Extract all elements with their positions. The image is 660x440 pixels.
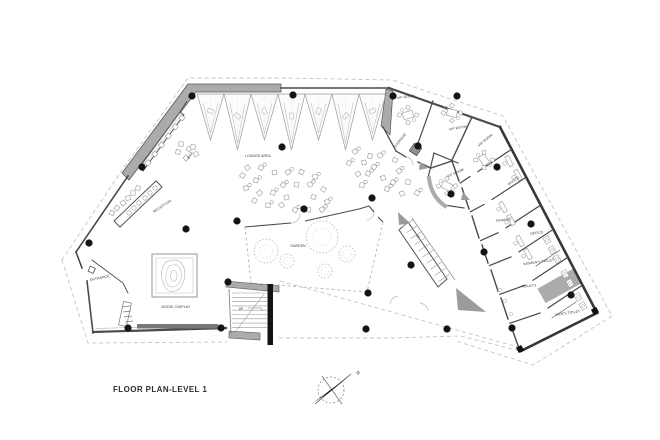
reception-chair-icon xyxy=(132,206,136,210)
tree-icon xyxy=(306,221,338,253)
vip-chair-icon xyxy=(482,166,486,170)
desk-icon xyxy=(505,155,514,167)
vip-side-table-icon xyxy=(476,153,479,156)
tree-inner xyxy=(313,228,331,246)
vip-table-icon xyxy=(446,109,457,118)
table-icon xyxy=(285,180,288,183)
column-dot xyxy=(233,217,240,224)
tree-icon xyxy=(339,246,355,262)
chair-icon xyxy=(266,203,271,208)
compass-north-label: N xyxy=(354,370,361,377)
label-vip-room-3: VIP ROOM xyxy=(477,133,493,148)
reception-chair-icon xyxy=(153,186,157,190)
column-dot xyxy=(389,92,396,99)
wall-wing-inner xyxy=(452,161,520,351)
column-dot xyxy=(278,143,285,150)
column-dot xyxy=(567,291,574,298)
table-icon xyxy=(258,176,261,179)
tree-icon xyxy=(254,239,278,263)
office-desks xyxy=(497,155,533,260)
chair-icon xyxy=(284,195,289,200)
door-wedge-wing xyxy=(461,192,470,200)
column-dot xyxy=(453,92,460,99)
table-icon xyxy=(382,151,385,154)
desk-icon xyxy=(516,235,525,247)
tree-inner xyxy=(283,257,291,265)
stair-side-band xyxy=(399,222,447,287)
column-dot xyxy=(300,205,307,212)
column-dot xyxy=(493,163,500,170)
chair-icon xyxy=(251,197,257,203)
toilet-stall-icon xyxy=(579,302,587,311)
table-icon xyxy=(270,201,273,204)
model-display xyxy=(152,254,197,297)
wall-vip-partition-1 xyxy=(417,101,433,146)
vip-chair-icon xyxy=(414,113,418,117)
wing-corner-cap-2 xyxy=(516,345,524,353)
chair-icon xyxy=(294,182,299,187)
tree-inner xyxy=(343,250,352,259)
label-garden: GARDEN xyxy=(290,244,306,248)
chair-icon xyxy=(135,185,140,190)
garden-edge-dashed xyxy=(245,222,383,292)
chair-icon xyxy=(114,205,120,211)
tree-inner xyxy=(259,244,272,257)
chair-icon xyxy=(131,191,136,196)
stair-main-left-edge xyxy=(229,289,231,334)
sink-icon xyxy=(509,312,513,316)
column-dot xyxy=(364,289,371,296)
table-icon xyxy=(376,162,379,165)
table-icon xyxy=(329,197,332,200)
toilet-stall-icon xyxy=(574,293,582,302)
chair-icon xyxy=(312,174,317,179)
vip-chair-icon xyxy=(449,103,454,108)
stair-main-break-line xyxy=(236,294,264,331)
label-entrance: ENTRANCE xyxy=(90,274,111,282)
chair-icon xyxy=(256,190,262,196)
chair-icon xyxy=(272,170,277,175)
vip-side-table-icon xyxy=(400,108,403,111)
table-icon xyxy=(290,168,293,171)
label-vip-room-1: VIP ROOM xyxy=(397,94,415,100)
label-bar: BAR xyxy=(186,151,194,160)
tree-inner xyxy=(321,267,329,275)
table-icon xyxy=(370,169,373,172)
table-icon xyxy=(275,188,278,191)
vip-chair-icon xyxy=(453,183,458,188)
label-toilets: TOILETS xyxy=(521,283,537,289)
vip-chair-icon xyxy=(406,120,410,124)
chair-icon xyxy=(392,157,398,163)
column-dot xyxy=(443,325,450,332)
table-icon xyxy=(401,166,404,169)
ramp xyxy=(119,301,133,326)
door-wedge-stairside xyxy=(398,212,410,225)
reception-chair-icon xyxy=(143,196,147,200)
column-dot xyxy=(182,225,189,232)
column-dot xyxy=(138,163,145,170)
desk-chair-icon xyxy=(503,162,507,166)
label-model-display: MODEL DISPLAY xyxy=(162,305,191,309)
wall-vip4-gray-arc xyxy=(429,178,445,206)
chair-icon xyxy=(380,175,386,181)
column-dot xyxy=(447,190,454,197)
table-icon xyxy=(364,180,367,183)
chair-icon xyxy=(355,171,361,177)
table-icon xyxy=(297,205,300,208)
ramp-outline xyxy=(119,301,132,326)
faceted-canopy xyxy=(197,94,386,150)
stair-main-treads xyxy=(232,293,267,327)
reception-chair-icon xyxy=(127,211,131,215)
table-icon xyxy=(312,180,315,183)
vip-chair-icon xyxy=(482,151,486,155)
door-arc-vip xyxy=(406,157,413,165)
chair-icon xyxy=(243,185,248,190)
misc-elements xyxy=(88,143,599,353)
vip-chair-icon xyxy=(491,158,495,162)
chair-icon xyxy=(367,153,372,158)
vip-table-icon xyxy=(441,181,453,192)
chair-icon xyxy=(193,151,199,157)
stair-main xyxy=(226,281,279,345)
chair-icon xyxy=(361,160,366,165)
door-arc-garden-east xyxy=(367,212,374,220)
vip-chair-icon xyxy=(474,158,478,162)
table-icon xyxy=(357,147,360,150)
wall-partition-s2 xyxy=(470,177,526,212)
vip-chair-icon xyxy=(449,118,454,123)
chair-icon xyxy=(360,183,365,188)
garden-trees xyxy=(254,221,355,278)
label-mens-toilet: MEN'S TOILET xyxy=(555,309,580,316)
column-dot xyxy=(362,325,369,332)
column-dot xyxy=(124,324,131,331)
table-icon xyxy=(324,205,327,208)
desk-icon xyxy=(524,248,533,260)
bench-bar xyxy=(137,324,218,329)
vip-side-table-icon xyxy=(439,179,442,182)
desk-icon xyxy=(499,201,508,213)
chair-icon xyxy=(253,178,258,183)
table-icon xyxy=(419,188,422,191)
label-up-main: UP xyxy=(239,307,243,311)
table-icon xyxy=(351,158,354,161)
chair-icon xyxy=(239,172,245,178)
chair-icon xyxy=(179,142,183,146)
desk-chair-icon xyxy=(522,254,526,258)
wall-bottom xyxy=(93,328,226,332)
label-office-2: OFFICE xyxy=(530,230,544,236)
up-leader-line xyxy=(248,308,263,311)
vip-side-table-icon xyxy=(456,116,459,119)
door-arc-corridor-2 xyxy=(420,303,428,311)
sink-icon xyxy=(503,299,507,303)
label-womens-toilet: WOMEN'S TOILET xyxy=(523,258,554,266)
column-dot xyxy=(224,278,231,285)
chair-icon xyxy=(109,210,115,216)
table-icon xyxy=(389,184,392,187)
column-dot xyxy=(480,248,487,255)
wall-vip3-left xyxy=(452,117,472,160)
compass: N xyxy=(313,370,361,404)
entrance-door-square xyxy=(88,266,95,273)
reception xyxy=(109,181,162,227)
chair-icon xyxy=(125,195,131,201)
chair-icon xyxy=(244,165,250,171)
column-dot xyxy=(217,324,224,331)
column-dot xyxy=(368,194,375,201)
column-dot xyxy=(289,91,296,98)
door-wedge-corridor xyxy=(456,288,486,312)
vip-chair-icon xyxy=(406,105,410,109)
tree-icon xyxy=(318,264,332,278)
chair-icon xyxy=(399,191,405,197)
column-dot xyxy=(414,142,421,149)
garden xyxy=(245,206,383,292)
vip-side-table-icon xyxy=(412,118,415,121)
chair-icon xyxy=(406,180,411,185)
model-display-outer xyxy=(152,254,197,297)
table-icon xyxy=(317,172,320,175)
door-arc-garden-west xyxy=(291,214,300,223)
chair-icon xyxy=(320,186,326,192)
chair-icon xyxy=(299,169,305,175)
door-arc-corridor-1 xyxy=(390,296,398,304)
chair-icon xyxy=(278,202,284,208)
tree-icon xyxy=(280,254,294,268)
vip-chair-icon xyxy=(436,183,441,188)
stair-main-black-wall xyxy=(268,284,274,345)
desk-chair-icon xyxy=(514,242,518,246)
column-dot xyxy=(407,261,414,268)
column-dot xyxy=(527,220,534,227)
vip-chair-icon xyxy=(441,110,446,115)
chair-icon xyxy=(191,145,196,150)
walls xyxy=(76,88,597,351)
floor-plan-canvas: BAR LOUNGE AREA RECEPTION ENTRANCE MODEL… xyxy=(0,0,660,440)
wall-entrance-side xyxy=(76,252,93,333)
reception-chair-icon xyxy=(148,191,152,195)
desk-chair-icon xyxy=(497,208,501,212)
column-dot xyxy=(188,92,195,99)
table-icon xyxy=(248,183,251,186)
drawing-title: FLOOR PLAN-LEVEL 1 xyxy=(113,385,207,394)
label-lounge-area: LOUNGE AREA xyxy=(245,154,272,158)
chair-icon xyxy=(175,149,181,155)
toilet-stall-icon xyxy=(543,236,551,245)
label-storage: STORAGE xyxy=(393,132,407,149)
label-reception: RECEPTION xyxy=(153,199,173,214)
table-icon xyxy=(395,178,398,181)
chair-icon xyxy=(311,194,317,200)
vip-chair-icon xyxy=(397,113,401,117)
chair-icon xyxy=(120,200,126,206)
reception-chair-icon xyxy=(137,201,141,205)
table-icon xyxy=(263,163,266,166)
column-dot xyxy=(508,324,515,331)
garden-wall-solid xyxy=(245,206,383,227)
site-dash-line-upper xyxy=(280,281,525,349)
label-vip-room-2: VIP ROOM xyxy=(449,124,468,131)
column-dot xyxy=(85,239,92,246)
vip-table-icon xyxy=(402,110,413,119)
stair-main-bottom-gray xyxy=(229,331,260,340)
sink-icon xyxy=(498,288,502,292)
ramp-stripes xyxy=(122,306,133,322)
wall-left-edge xyxy=(76,176,128,252)
